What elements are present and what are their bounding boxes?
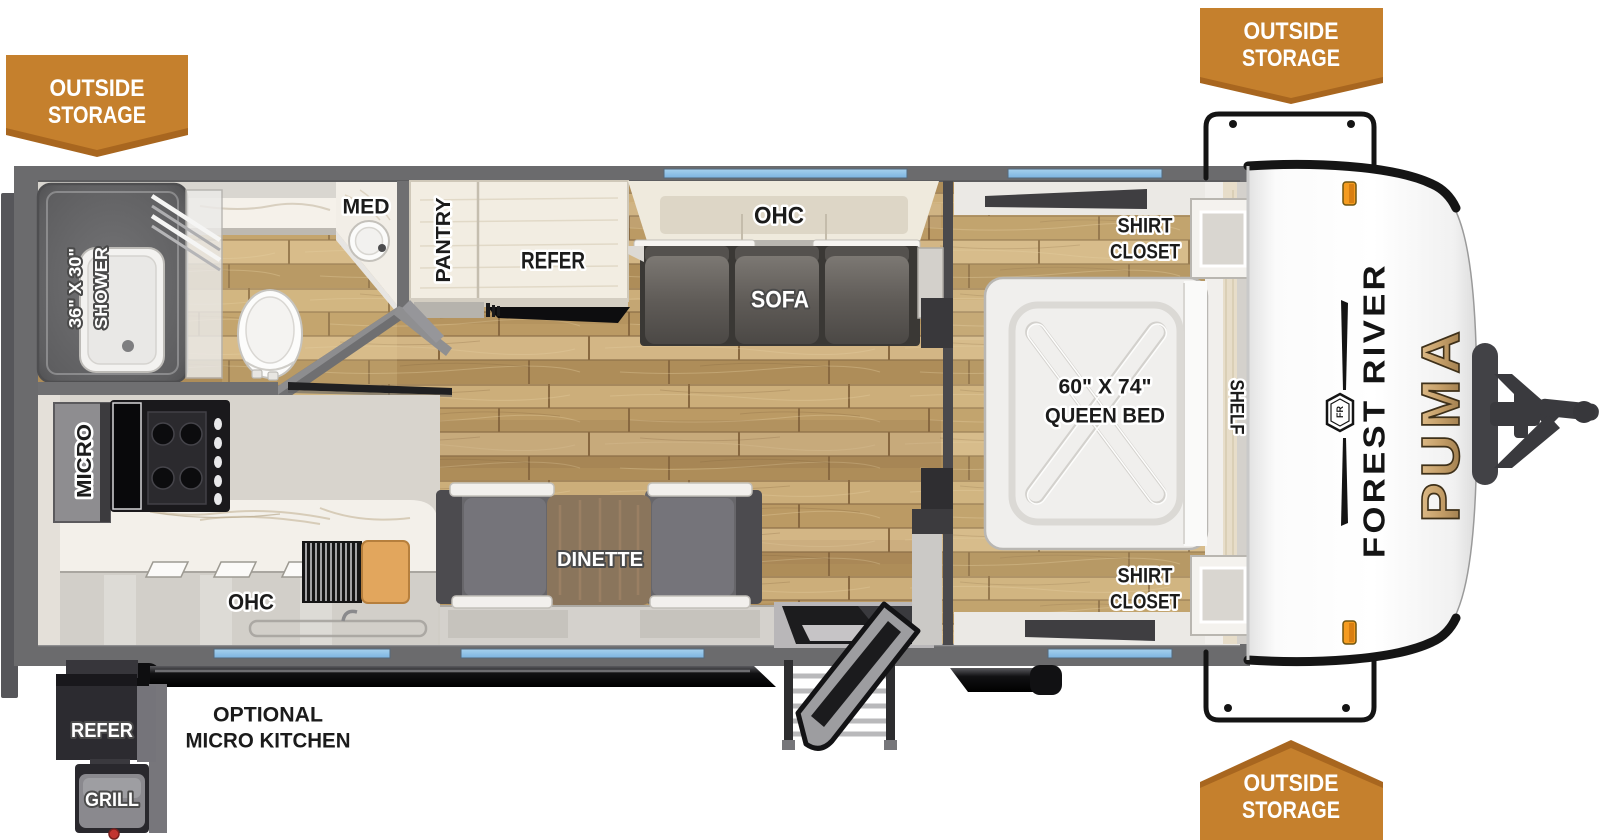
svg-text:STORAGE: STORAGE bbox=[1242, 45, 1340, 72]
svg-text:PANTRY: PANTRY bbox=[433, 197, 455, 283]
svg-text:OPTIONAL: OPTIONAL bbox=[213, 704, 323, 727]
svg-text:60" X 74": 60" X 74" bbox=[1059, 376, 1152, 399]
svg-text:FOREST RIVER: FOREST RIVER bbox=[1357, 262, 1392, 558]
svg-text:FR: FR bbox=[1335, 406, 1345, 418]
svg-text:SHIRT: SHIRT bbox=[1118, 565, 1173, 588]
svg-text:SOFA: SOFA bbox=[751, 287, 809, 314]
svg-text:PUMA: PUMA bbox=[1411, 326, 1471, 523]
svg-text:DINETTE: DINETTE bbox=[557, 549, 643, 571]
svg-text:36" X 30": 36" X 30" bbox=[65, 248, 85, 328]
svg-text:OHC: OHC bbox=[228, 590, 274, 615]
svg-text:STORAGE: STORAGE bbox=[48, 102, 146, 129]
svg-text:MICRO: MICRO bbox=[74, 424, 96, 498]
svg-text:SHELF: SHELF bbox=[1226, 380, 1247, 435]
svg-text:REFER: REFER bbox=[71, 720, 133, 742]
svg-text:CLOSET: CLOSET bbox=[1110, 241, 1180, 264]
svg-text:STORAGE: STORAGE bbox=[1242, 797, 1340, 824]
svg-text:MICRO KITCHEN: MICRO KITCHEN bbox=[186, 730, 351, 753]
svg-text:OUTSIDE: OUTSIDE bbox=[50, 75, 145, 102]
svg-text:OUTSIDE: OUTSIDE bbox=[1244, 770, 1339, 797]
svg-text:SHOWER: SHOWER bbox=[91, 247, 111, 329]
svg-text:REFER: REFER bbox=[521, 248, 585, 275]
svg-text:OUTSIDE: OUTSIDE bbox=[1244, 18, 1339, 45]
svg-text:SHIRT: SHIRT bbox=[1118, 215, 1173, 238]
svg-text:OHC: OHC bbox=[754, 203, 804, 230]
svg-text:GRILL: GRILL bbox=[85, 790, 139, 811]
svg-text:CLOSET: CLOSET bbox=[1110, 591, 1180, 614]
svg-text:MED: MED bbox=[343, 196, 390, 219]
svg-text:QUEEN BED: QUEEN BED bbox=[1045, 405, 1165, 428]
